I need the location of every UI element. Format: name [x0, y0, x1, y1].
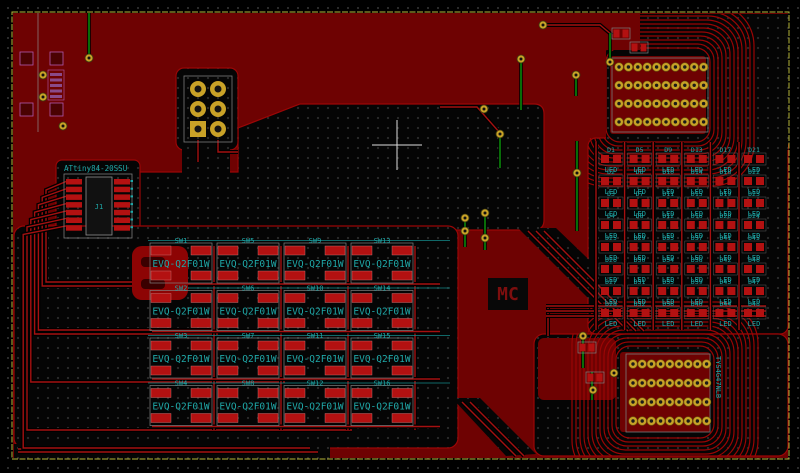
via-hole — [484, 212, 487, 215]
pcb-canvas[interactable]: SW1EVQ-Q2F01WSW5EVQ-Q2F01WSW9EVQ-Q2F01WS… — [0, 0, 800, 473]
pad-mark — [131, 195, 134, 197]
smd-pad — [218, 319, 238, 328]
switch-value-label: EVQ-Q2F01W — [152, 259, 209, 270]
smd-pad — [630, 155, 638, 163]
drill-hole — [636, 65, 639, 68]
smd-pad — [687, 265, 695, 273]
smd-pad — [658, 309, 666, 317]
drill-hole — [646, 65, 649, 68]
smd-pad — [658, 155, 666, 163]
drill-hole — [636, 102, 639, 105]
led-ref-label: D18 — [720, 168, 732, 176]
via-hole — [609, 61, 612, 64]
smd-pad — [218, 271, 238, 280]
led-ref-label: D29 — [634, 234, 646, 242]
smd-pad — [392, 341, 412, 350]
drill-hole — [617, 65, 620, 68]
smd-pad — [687, 287, 695, 295]
smd-pad — [687, 155, 695, 163]
switch-value-label: EVQ-Q2F01W — [286, 259, 343, 270]
striped-footprint — [48, 70, 64, 100]
led-ref-label: D2 — [607, 168, 615, 176]
smd-pad — [715, 287, 723, 295]
smd-pad — [114, 218, 130, 224]
drill-hole — [641, 381, 644, 384]
led-ref-label: D4 — [607, 212, 615, 220]
led-value-label: LED — [633, 320, 646, 328]
drill-hole — [683, 102, 686, 105]
stripe-pad — [50, 84, 62, 87]
drill-hole — [687, 419, 690, 422]
smd-pad — [630, 243, 638, 251]
smd-pad — [66, 194, 82, 200]
smd-pad — [151, 246, 171, 255]
drill-hole — [705, 419, 708, 422]
smd-pad — [670, 199, 678, 207]
smd-pad — [50, 103, 63, 116]
smd-pad — [630, 287, 638, 295]
switch-value-label: EVQ-Q2F01W — [353, 307, 410, 318]
smd-pad — [715, 177, 723, 185]
smd-pad — [601, 287, 609, 295]
switch-value-label: EVQ-Q2F01W — [286, 402, 343, 413]
drill-hole — [674, 120, 677, 123]
led-ref-label: D30 — [634, 256, 646, 264]
smd-pad — [687, 177, 695, 185]
smd-pad — [285, 414, 305, 423]
drill-hole — [693, 84, 696, 87]
smd-pad — [756, 287, 764, 295]
smd-pad — [66, 179, 82, 185]
smd-pad — [744, 221, 752, 229]
smd-pad — [642, 155, 650, 163]
mcu-value-label: ATtiny84-20SSU — [64, 164, 127, 173]
connector-bottom-label: TYS4G47NLB — [714, 356, 722, 398]
via-hole — [62, 125, 65, 128]
smd-pad — [715, 265, 723, 273]
drill-hole — [627, 65, 630, 68]
via-hole — [582, 335, 585, 338]
led-ref-label: D34 — [662, 256, 674, 264]
smd-pad — [114, 179, 130, 185]
led-ref-label: D41 — [720, 234, 732, 242]
pcb-layout-view[interactable]: SW1EVQ-Q2F01WSW5EVQ-Q2F01WSW9EVQ-Q2F01WS… — [0, 0, 800, 473]
led-ref-label: D19 — [720, 190, 732, 198]
via-hole — [499, 133, 502, 136]
smd-pad — [285, 319, 305, 328]
drill-hole — [664, 65, 667, 68]
via-hole — [42, 96, 45, 99]
smd-pad — [601, 177, 609, 185]
smd-pad — [756, 221, 764, 229]
smd-pad — [352, 341, 372, 350]
drill-hole — [693, 65, 696, 68]
smd-pad — [392, 366, 412, 375]
smd-pad — [601, 265, 609, 273]
smd-pad — [630, 177, 638, 185]
smd-pad — [744, 243, 752, 251]
smd-pad — [258, 341, 278, 350]
drill-hole — [646, 84, 649, 87]
switch-value-label: EVQ-Q2F01W — [152, 354, 209, 365]
via-hole — [592, 389, 595, 392]
smd-pad — [601, 221, 609, 229]
drill-hole — [655, 120, 658, 123]
smd-pad — [756, 177, 764, 185]
switch-ref-label: SW2 — [175, 285, 188, 293]
drill-hole — [215, 106, 222, 113]
smd-pad — [715, 309, 723, 317]
smd-pad — [392, 271, 412, 280]
drill-hole — [674, 65, 677, 68]
smd-pad — [658, 287, 666, 295]
smd-pad — [699, 221, 707, 229]
smd-pad — [392, 294, 412, 303]
led-ref-label: D5 — [636, 146, 644, 154]
smd-pad — [715, 221, 723, 229]
smd-pad — [699, 309, 707, 317]
smd-pad — [670, 265, 678, 273]
smd-pad — [687, 243, 695, 251]
smd-pad — [658, 221, 666, 229]
smd-pad — [613, 221, 621, 229]
smd-pad — [114, 187, 130, 193]
smd-pad — [285, 389, 305, 398]
smd-pad — [285, 271, 305, 280]
smd-pad — [191, 271, 211, 280]
smd-pad — [191, 246, 211, 255]
smd-pad — [699, 243, 707, 251]
drill-hole — [631, 400, 634, 403]
led-ref-label: D43 — [720, 278, 732, 286]
slot-pad — [141, 279, 165, 289]
smd-pad — [658, 199, 666, 207]
smd-pad — [597, 374, 603, 382]
drill-hole — [668, 400, 671, 403]
smd-pad — [613, 155, 621, 163]
drill-hole — [655, 65, 658, 68]
smd-pad — [632, 44, 638, 52]
drill-hole — [659, 381, 662, 384]
smd-pad — [151, 319, 171, 328]
pad-mark — [131, 219, 134, 221]
smd-pad — [613, 265, 621, 273]
switch-ref-label: SW10 — [307, 285, 324, 293]
drill-hole — [664, 84, 667, 87]
smd-pad — [670, 177, 678, 185]
smd-pad — [218, 246, 238, 255]
led-ref-label: D7 — [636, 190, 644, 198]
led-ref-label: D45 — [748, 234, 760, 242]
led-ref-label: D32 — [634, 300, 646, 308]
smd-pad — [642, 309, 650, 317]
smd-pad — [744, 199, 752, 207]
drill-hole — [677, 362, 680, 365]
drill-hole — [687, 362, 690, 365]
smd-pad — [114, 194, 130, 200]
switch-ref-label: SW14 — [374, 285, 391, 293]
switch-ref-label: SW15 — [374, 332, 391, 340]
drill-hole — [655, 102, 658, 105]
switch-value-label: EVQ-Q2F01W — [219, 402, 276, 413]
via-hole — [464, 230, 467, 233]
via-hole — [484, 237, 487, 240]
smd-pad — [623, 30, 629, 38]
logo-footprint[interactable]: MC — [488, 278, 528, 310]
led-ref-label: D6 — [636, 168, 644, 176]
pad-mark — [131, 226, 134, 228]
smd-pad — [613, 309, 621, 317]
led-ref-label: D27 — [605, 278, 617, 286]
smd-pad — [614, 30, 620, 38]
drill-hole — [650, 362, 653, 365]
smd-pad — [191, 389, 211, 398]
led-ref-label: D8 — [636, 212, 644, 220]
smd-pad — [699, 155, 707, 163]
switch-value-label: EVQ-Q2F01W — [219, 354, 276, 365]
smd-pad — [687, 199, 695, 207]
smd-pad — [392, 246, 412, 255]
smd-pad — [325, 389, 345, 398]
smd-pad — [727, 155, 735, 163]
smd-pad — [756, 309, 764, 317]
led-ref-label: D36 — [662, 300, 674, 308]
stripe-pad — [50, 95, 62, 98]
drill-hole — [687, 400, 690, 403]
led-ref-label: D3 — [607, 190, 615, 198]
drill-hole — [195, 106, 202, 113]
smd-pad — [658, 243, 666, 251]
drill-hole — [195, 126, 202, 133]
drill-hole — [215, 126, 222, 133]
switch-value-label: EVQ-Q2F01W — [286, 354, 343, 365]
smd-pad — [613, 177, 621, 185]
led-ref-label: D13 — [691, 146, 703, 154]
led-ref-label: D20 — [720, 212, 732, 220]
drill-hole — [631, 381, 634, 384]
drill-hole — [636, 84, 639, 87]
led-ref-label: D26 — [605, 256, 617, 264]
smd-pad — [756, 155, 764, 163]
switch-value-label: EVQ-Q2F01W — [219, 259, 276, 270]
smd-pad — [325, 341, 345, 350]
led-ref-label: D31 — [634, 278, 646, 286]
smd-pad — [114, 210, 130, 216]
led-ref-label: D44 — [720, 300, 732, 308]
switch-value-label: EVQ-Q2F01W — [353, 354, 410, 365]
led-value-label: LED — [690, 320, 703, 328]
smd-pad — [352, 246, 372, 255]
smd-pad — [641, 44, 647, 52]
led-ref-label: D46 — [748, 256, 760, 264]
smd-pad — [727, 199, 735, 207]
smd-pad — [756, 265, 764, 273]
smd-pad — [670, 309, 678, 317]
stripe-pad — [50, 79, 62, 82]
drill-hole — [627, 120, 630, 123]
smd-pad — [588, 374, 594, 382]
smd-pad — [218, 341, 238, 350]
drill-hole — [705, 381, 708, 384]
switch-value-label: EVQ-Q2F01W — [152, 307, 209, 318]
switch-value-label: EVQ-Q2F01W — [353, 402, 410, 413]
led-ref-label: D22 — [748, 168, 760, 176]
smd-pad — [699, 265, 707, 273]
drill-hole — [659, 400, 662, 403]
smd-pad — [352, 414, 372, 423]
led-ref-label: D24 — [748, 212, 760, 220]
led-ref-label: D12 — [662, 212, 674, 220]
drill-hole — [650, 419, 653, 422]
smd-pad — [352, 271, 372, 280]
led-value-label: LED — [748, 320, 761, 328]
smd-pad — [658, 177, 666, 185]
smd-pad — [642, 199, 650, 207]
drill-hole — [646, 102, 649, 105]
led-value-label: LED — [662, 320, 675, 328]
smd-pad — [589, 344, 595, 352]
smd-pad — [258, 246, 278, 255]
drill-hole — [683, 120, 686, 123]
drill-hole — [674, 102, 677, 105]
smd-pad — [642, 243, 650, 251]
led-ref-label: D28 — [605, 300, 617, 308]
smd-pad — [352, 366, 372, 375]
led-ref-label: D25 — [605, 234, 617, 242]
smd-pad — [687, 221, 695, 229]
drill-hole — [693, 120, 696, 123]
smd-pad — [392, 414, 412, 423]
smd-pad — [744, 309, 752, 317]
led-ref-label: D39 — [691, 278, 703, 286]
smd-pad — [727, 309, 735, 317]
switch-ref-label: SW11 — [307, 332, 324, 340]
drill-hole — [668, 381, 671, 384]
drill-hole — [631, 362, 634, 365]
pad-mark — [131, 203, 134, 205]
drill-hole — [627, 84, 630, 87]
drill-hole — [677, 419, 680, 422]
switch-ref-label: SW12 — [307, 380, 324, 388]
smd-pad — [670, 221, 678, 229]
smd-pad — [727, 287, 735, 295]
drill-hole — [696, 362, 699, 365]
led-value-label: LED — [719, 320, 732, 328]
smd-pad — [20, 103, 33, 116]
led-ref-label: D47 — [748, 278, 760, 286]
led-ref-label: D23 — [748, 190, 760, 198]
smd-pad — [601, 309, 609, 317]
smd-pad — [218, 414, 238, 423]
smd-pad — [218, 389, 238, 398]
via-hole — [464, 217, 467, 220]
pad-mark — [131, 180, 134, 182]
drill-hole — [641, 400, 644, 403]
smd-pad — [756, 199, 764, 207]
smd-pad — [392, 389, 412, 398]
stripe-pad — [50, 73, 62, 76]
drill-hole — [646, 120, 649, 123]
drill-hole — [659, 362, 662, 365]
drill-hole — [702, 102, 705, 105]
stripe-pad — [50, 90, 62, 93]
smd-pad — [727, 243, 735, 251]
via-hole — [88, 57, 91, 60]
drill-hole — [668, 419, 671, 422]
smd-pad — [285, 294, 305, 303]
smd-pad — [744, 265, 752, 273]
smd-pad — [258, 414, 278, 423]
smd-pad — [630, 309, 638, 317]
smd-pad — [285, 366, 305, 375]
drill-hole — [674, 84, 677, 87]
via-hole — [576, 172, 579, 175]
led-ref-label: D16 — [691, 212, 703, 220]
smd-pad — [699, 287, 707, 295]
switch-ref-label: SW3 — [175, 332, 188, 340]
via-hole — [575, 74, 578, 77]
smd-pad — [658, 265, 666, 273]
zone-header-join — [182, 130, 230, 180]
pad-mark — [131, 188, 134, 190]
smd-pad — [670, 155, 678, 163]
drill-hole — [641, 362, 644, 365]
drill-hole — [677, 381, 680, 384]
smd-pad — [613, 243, 621, 251]
smd-pad — [151, 294, 171, 303]
drill-hole — [215, 86, 222, 93]
smd-pad — [258, 366, 278, 375]
switch-ref-label: SW13 — [374, 237, 391, 245]
smd-pad — [151, 341, 171, 350]
smd-pad — [613, 287, 621, 295]
switch-value-label: EVQ-Q2F01W — [353, 259, 410, 270]
smd-pad — [352, 319, 372, 328]
smd-pad — [66, 187, 82, 193]
smd-pad — [191, 341, 211, 350]
led-ref-label: D15 — [691, 190, 703, 198]
smd-pad — [630, 265, 638, 273]
drill-hole — [677, 400, 680, 403]
smd-pad — [715, 155, 723, 163]
led-ref-label: D10 — [662, 168, 674, 176]
led-ref-label: D37 — [691, 234, 703, 242]
switch-ref-label: SW4 — [175, 380, 188, 388]
smd-pad — [727, 221, 735, 229]
led-ref-label: D42 — [720, 256, 732, 264]
smd-pad — [151, 414, 171, 423]
mcu-ref-label: J1 — [95, 203, 103, 211]
smd-pad — [191, 319, 211, 328]
smd-pad — [151, 271, 171, 280]
led-ref-label: D17 — [720, 146, 732, 154]
switch-ref-label: SW1 — [175, 237, 188, 245]
smd-pad — [325, 246, 345, 255]
drill-hole — [617, 120, 620, 123]
switch-value-label: EVQ-Q2F01W — [286, 307, 343, 318]
smd-pad — [151, 389, 171, 398]
smd-pad — [687, 309, 695, 317]
via-hole — [613, 372, 616, 375]
smd-pad — [50, 52, 63, 65]
smd-pad — [114, 202, 130, 208]
smd-pad — [66, 210, 82, 216]
smd-pad — [613, 199, 621, 207]
led-ref-label: D11 — [662, 190, 674, 198]
smd-pad — [715, 243, 723, 251]
smd-pad — [191, 414, 211, 423]
via-hole — [542, 24, 545, 27]
